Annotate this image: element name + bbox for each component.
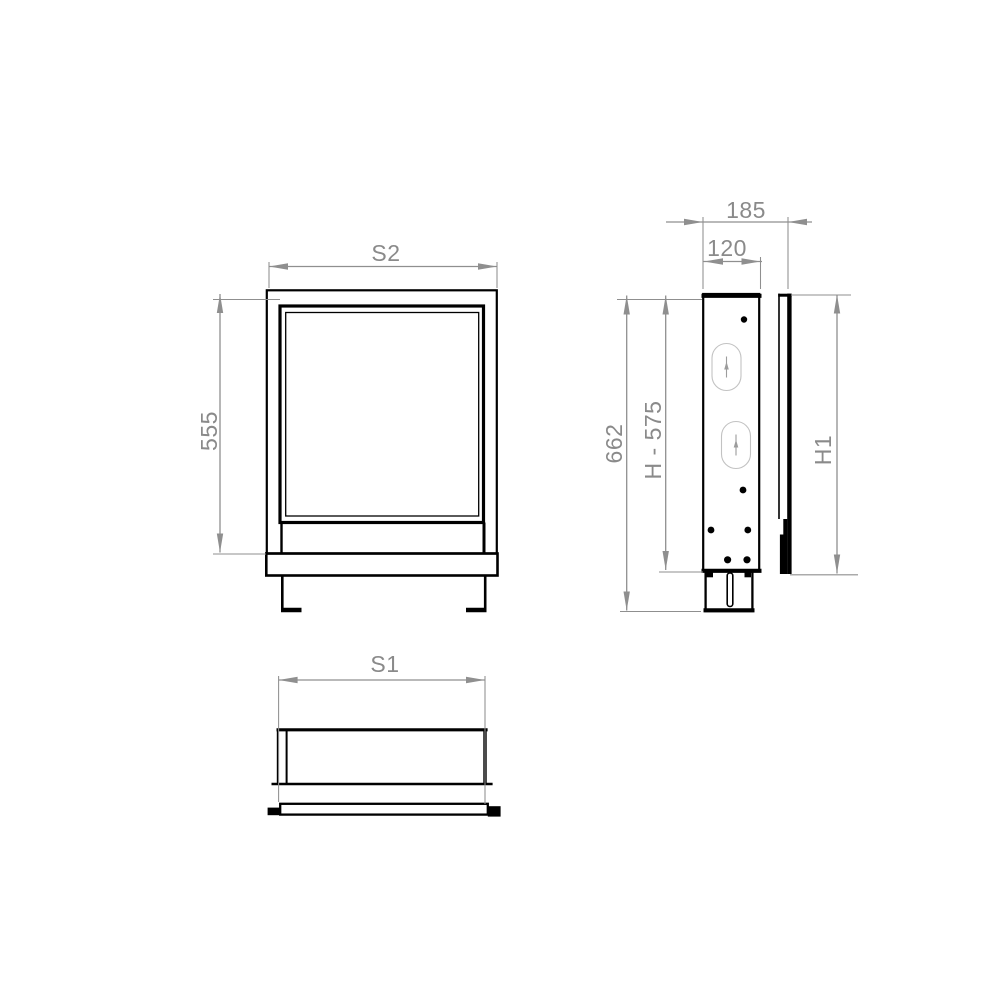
arrowhead — [624, 296, 630, 315]
front-window-glass-line — [286, 313, 479, 517]
front-view — [266, 290, 497, 610]
arrowhead — [834, 555, 840, 574]
obround-arrow-lower — [734, 440, 739, 448]
arrowhead — [279, 677, 298, 683]
dim-label-front-height: 555 — [196, 411, 222, 451]
arrowhead — [217, 294, 223, 313]
bottom-frame-end-cap-left — [268, 808, 281, 816]
dim-label-side-height-body: H - 575 — [640, 401, 666, 480]
side-mounting-holes — [708, 316, 752, 563]
side-joint-block-right — [745, 571, 752, 577]
dim-side-height-front: H1 — [790, 295, 858, 575]
arrowhead — [269, 263, 288, 270]
dim-label-side-height-front: H1 — [810, 435, 836, 465]
side-view — [702, 294, 792, 611]
front-base-plate — [266, 554, 497, 576]
arrowhead — [478, 263, 497, 270]
dim-label-front-width: S2 — [371, 240, 400, 266]
hole — [708, 527, 715, 534]
hole — [724, 556, 731, 563]
side-obround-cutouts — [712, 344, 751, 469]
bottom-front-frame-bar — [280, 804, 488, 815]
arrowhead — [663, 296, 669, 315]
dim-bottom-width: S1 — [279, 651, 485, 804]
arrowhead — [217, 534, 223, 553]
glass-panel-foot — [780, 535, 787, 575]
arrowhead — [624, 592, 630, 611]
arrowhead — [788, 219, 807, 225]
hole — [743, 556, 750, 563]
arrowhead — [834, 295, 840, 314]
technical-drawing-sheet: S2 555 185 120 — [0, 0, 1000, 1000]
hole — [741, 316, 747, 322]
dim-side-depth-body: 120 — [703, 235, 762, 289]
arrowhead — [684, 219, 703, 225]
bottom-frame-end-cap-right — [488, 806, 501, 816]
hole — [744, 527, 751, 534]
side-joint-block-left — [707, 571, 714, 577]
fireplace-three-view-drawing: S2 555 185 120 — [0, 0, 1000, 1000]
arrowhead — [663, 551, 669, 570]
side-leg-slot — [727, 573, 733, 607]
dim-label-side-depth-body: 120 — [707, 235, 747, 261]
obround-arrow-upper — [724, 362, 729, 370]
dim-label-bottom-width: S1 — [370, 651, 399, 677]
glass-panel-step — [783, 519, 787, 535]
dim-side-height-body: H - 575 — [640, 296, 703, 573]
front-window-outer — [280, 306, 484, 523]
bottom-view — [268, 729, 501, 817]
hole — [740, 487, 747, 494]
front-outer-frame — [267, 290, 497, 553]
dim-label-side-height-total: 662 — [601, 424, 627, 464]
side-front-glass-panel — [778, 294, 791, 574]
dim-front-width: S2 — [269, 240, 497, 288]
arrowhead — [466, 677, 485, 683]
dim-label-side-depth-total: 185 — [726, 197, 766, 223]
